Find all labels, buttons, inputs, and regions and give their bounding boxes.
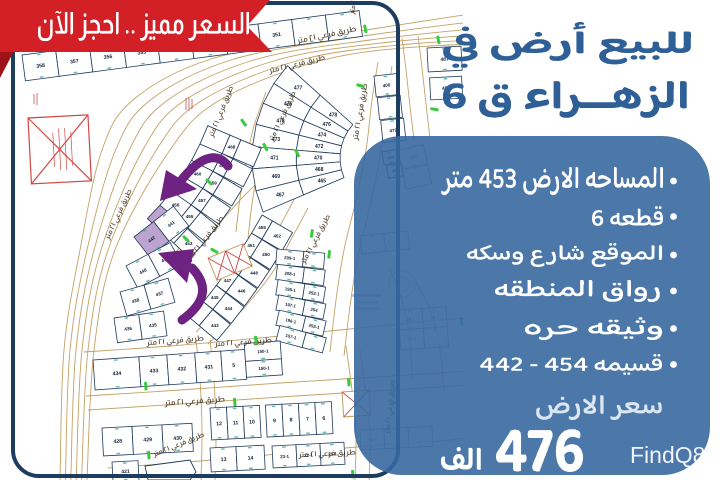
svg-text:455: 455 — [258, 225, 266, 230]
svg-text:468: 468 — [228, 144, 236, 149]
svg-text:447: 447 — [224, 278, 232, 283]
svg-text:431: 431 — [204, 364, 213, 371]
svg-text:478: 478 — [329, 112, 338, 118]
svg-text:429: 429 — [143, 437, 152, 443]
svg-text:465: 465 — [318, 179, 327, 185]
svg-text:451: 451 — [247, 243, 255, 248]
svg-text:443: 443 — [211, 323, 219, 328]
svg-text:400: 400 — [382, 83, 391, 89]
svg-text:7: 7 — [306, 417, 309, 423]
svg-text:457: 457 — [198, 198, 206, 203]
svg-text:472: 472 — [315, 144, 324, 150]
svg-text:452: 452 — [273, 234, 281, 239]
svg-text:469: 469 — [272, 174, 281, 180]
svg-text:209-1: 209-1 — [284, 255, 296, 261]
svg-text:13: 13 — [221, 457, 227, 463]
svg-text:446: 446 — [238, 288, 246, 293]
svg-text:358: 358 — [36, 63, 45, 70]
svg-text:468: 468 — [315, 167, 324, 173]
svg-text:356: 356 — [103, 54, 112, 61]
svg-text:150-1: 150-1 — [257, 348, 269, 354]
svg-text:477: 477 — [294, 86, 303, 92]
svg-text:455: 455 — [186, 214, 194, 219]
svg-text:FindQ8: FindQ8 — [630, 442, 705, 468]
svg-text:357: 357 — [70, 58, 79, 65]
svg-text:11: 11 — [233, 420, 239, 426]
svg-text:150-1: 150-1 — [258, 365, 270, 371]
svg-text:470: 470 — [314, 156, 323, 162]
svg-text:471: 471 — [270, 156, 279, 162]
svg-text:474: 474 — [318, 133, 327, 139]
svg-text:450: 450 — [262, 252, 270, 257]
svg-text:8: 8 — [289, 417, 292, 423]
svg-text:467: 467 — [276, 192, 285, 198]
svg-text:23-1: 23-1 — [280, 454, 290, 459]
svg-text:5: 5 — [232, 363, 235, 369]
svg-text:433: 433 — [149, 368, 158, 375]
svg-text:6: 6 — [322, 416, 325, 422]
svg-text:14: 14 — [248, 455, 254, 461]
svg-text:475: 475 — [284, 101, 293, 107]
svg-text:432: 432 — [177, 366, 186, 373]
svg-text:445: 445 — [211, 295, 219, 300]
svg-text:351: 351 — [272, 32, 281, 39]
svg-text:448: 448 — [250, 271, 258, 276]
svg-text:12: 12 — [216, 421, 222, 427]
svg-text:434: 434 — [113, 371, 122, 378]
svg-text:428: 428 — [113, 439, 122, 445]
svg-text:444: 444 — [225, 306, 233, 311]
svg-text:9: 9 — [273, 418, 276, 424]
svg-text:460: 460 — [194, 171, 202, 176]
svg-text:430: 430 — [173, 436, 182, 442]
svg-text:10: 10 — [249, 419, 255, 425]
svg-text:476: 476 — [323, 122, 332, 128]
